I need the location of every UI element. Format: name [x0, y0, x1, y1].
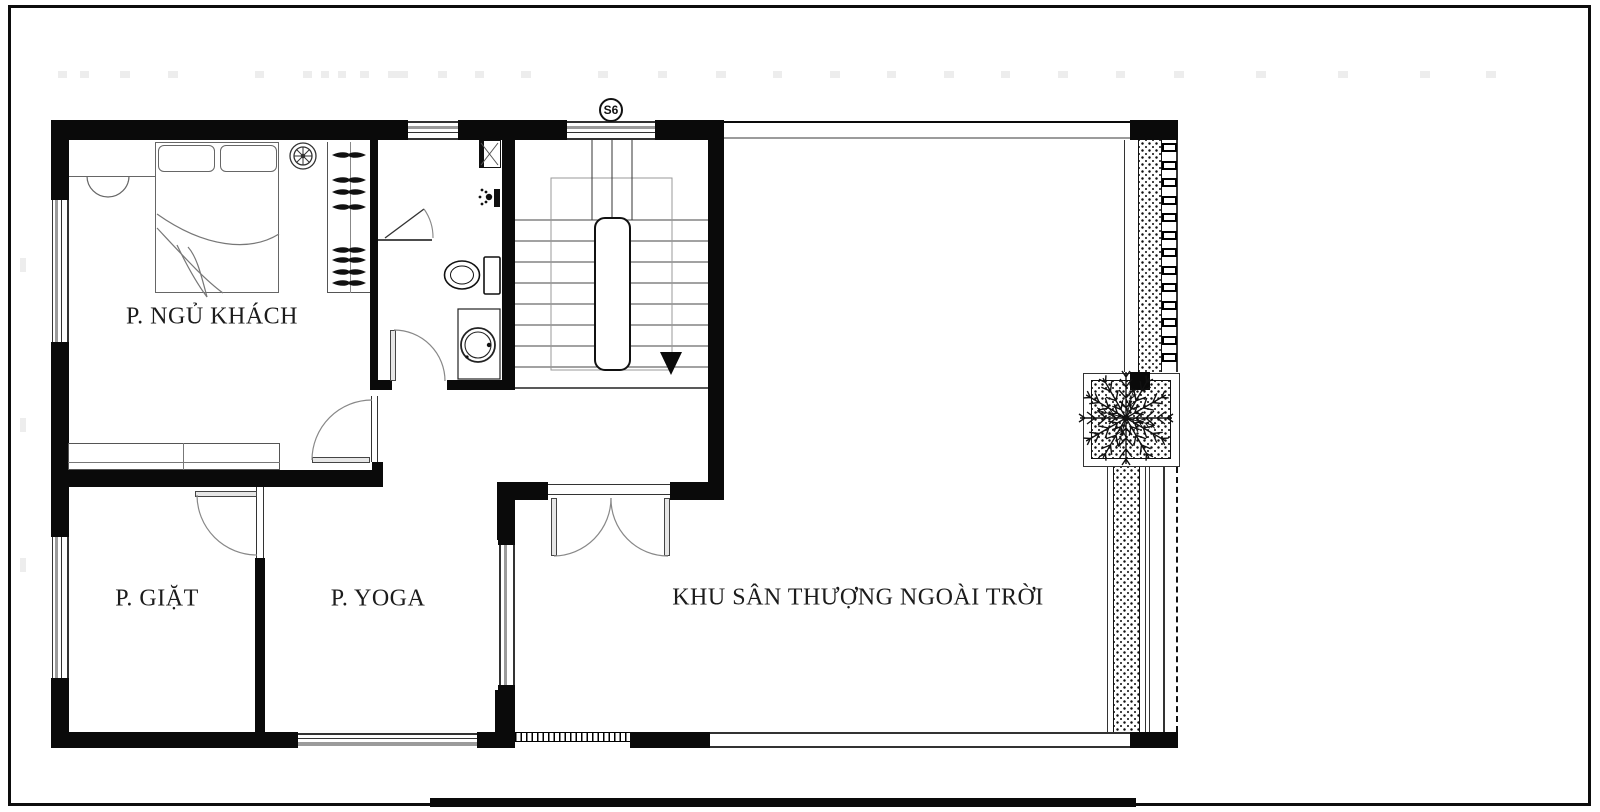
room-label-terrace: KHU SÂN THƯỢNG NGOÀI TRỜI — [672, 585, 1044, 612]
fixtures-overlay — [0, 0, 1600, 812]
floor-plan: S6 — [0, 0, 1600, 812]
planter-tree-icon — [1079, 371, 1173, 465]
wardrobe-hangers — [332, 152, 366, 286]
room-label-yoga: P. YOGA — [331, 586, 426, 613]
stair-flight — [515, 140, 708, 388]
stair-down-arrow-icon — [660, 352, 682, 375]
exhaust-x-icon — [481, 143, 498, 165]
bed-blanket — [157, 214, 279, 297]
room-label-laundry: P. GIẶT — [115, 586, 199, 613]
toilet-icon — [445, 257, 501, 294]
room-label-guest-bedroom: P. NGỦ KHÁCH — [126, 304, 298, 331]
washbasin-icon — [458, 309, 500, 379]
bedside-lamp-icon — [87, 176, 129, 197]
shower-door — [378, 209, 433, 240]
ceiling-fan-icon — [290, 143, 316, 169]
shower-head-icon — [479, 189, 500, 207]
